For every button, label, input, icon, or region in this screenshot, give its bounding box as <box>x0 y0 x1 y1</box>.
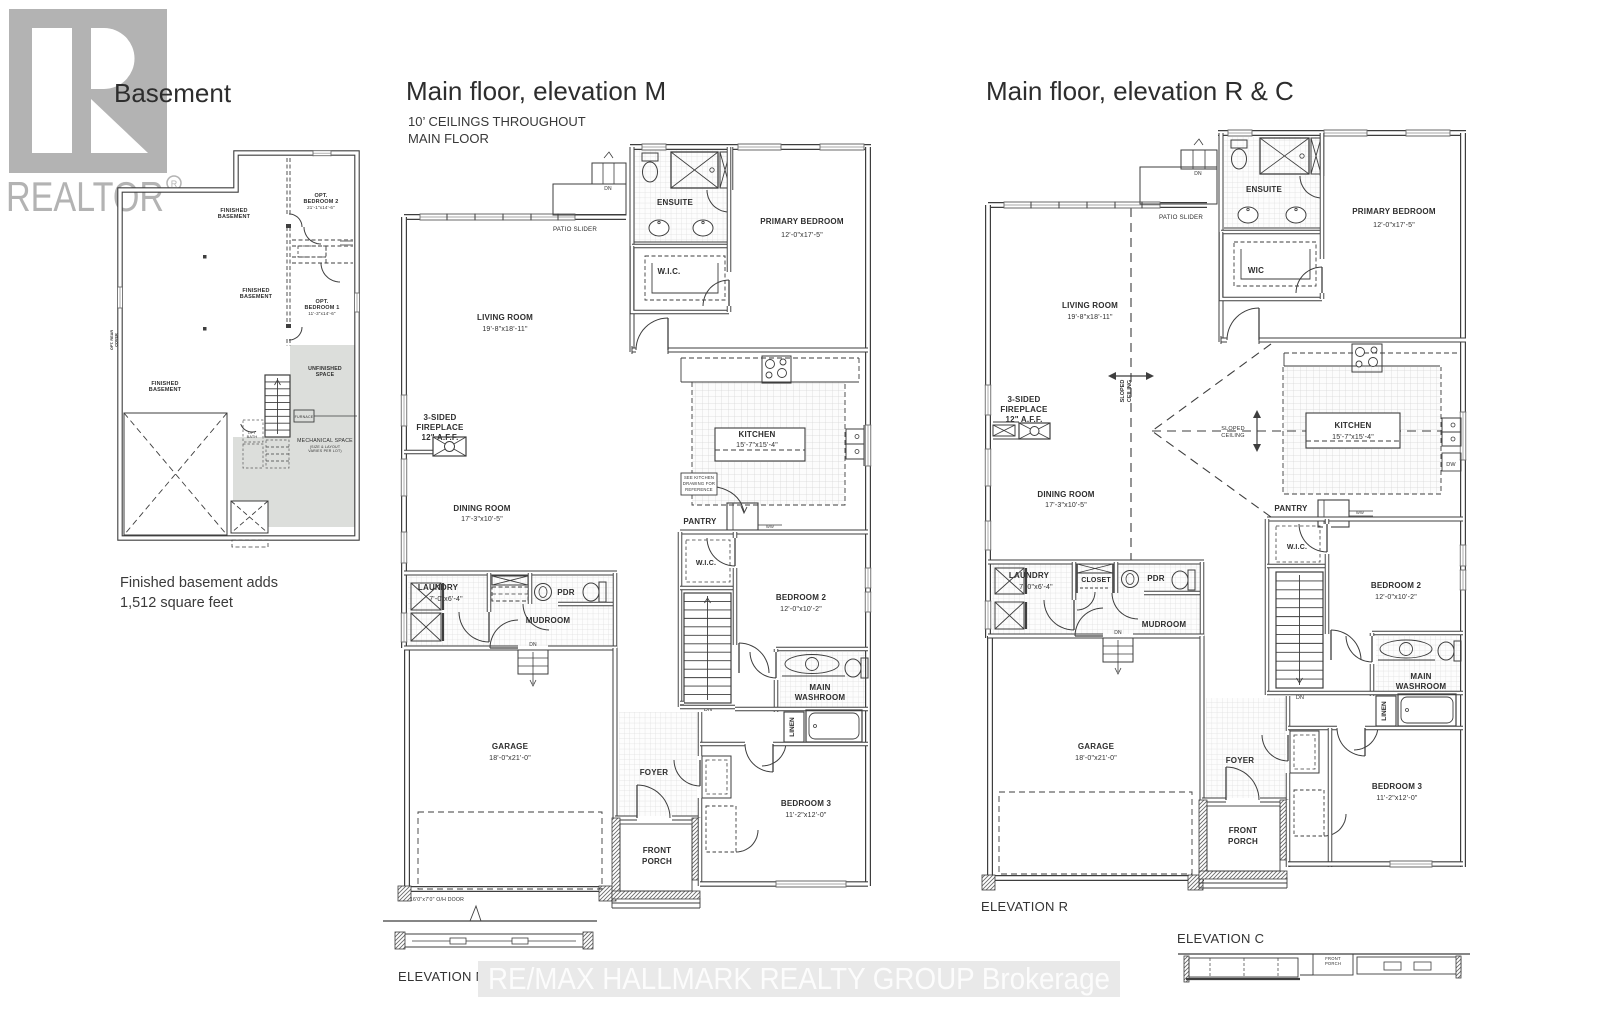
svg-text:15'-7"x15'-4": 15'-7"x15'-4" <box>1332 434 1374 441</box>
svg-text:ELEVATION M: ELEVATION M <box>398 969 487 984</box>
svg-text:SPACE: SPACE <box>316 372 335 378</box>
svg-text:16'0"x7'0" O/H DOOR: 16'0"x7'0" O/H DOOR <box>410 897 464 903</box>
svg-text:RE/MAX HALLMARK REALTY GROUP: RE/MAX HALLMARK REALTY GROUP Brokerage <box>488 961 1110 996</box>
svg-text:DN: DN <box>1194 171 1202 177</box>
svg-text:Finished basement adds: Finished basement adds <box>120 575 278 591</box>
svg-text:KITCHEN: KITCHEN <box>739 430 776 439</box>
svg-text:15'-7"x15'-4": 15'-7"x15'-4" <box>736 442 778 449</box>
svg-text:LIVING ROOM: LIVING ROOM <box>477 313 533 322</box>
svg-text:PANTRY: PANTRY <box>683 517 717 526</box>
svg-text:Main floor, elevation R & C: Main floor, elevation R & C <box>986 76 1294 106</box>
svg-text:12'-0"x10'-2": 12'-0"x10'-2" <box>780 606 822 613</box>
svg-text:FURNACE: FURNACE <box>295 415 314 419</box>
svg-text:MAIN: MAIN <box>809 683 830 692</box>
svg-text:7'-0"x6'-4": 7'-0"x6'-4" <box>429 596 463 603</box>
svg-text:SEE KITCHEN: SEE KITCHEN <box>684 475 714 480</box>
svg-text:12'-0"x10'-2": 12'-0"x10'-2" <box>1375 594 1417 601</box>
svg-text:FOYER: FOYER <box>1226 756 1255 765</box>
svg-text:10’ CEILINGS THROUGHOUT: 10’ CEILINGS THROUGHOUT <box>408 114 586 129</box>
svg-text:12'-0"x17'-5": 12'-0"x17'-5" <box>781 232 823 239</box>
svg-text:FIREPLACE: FIREPLACE <box>1000 405 1048 414</box>
svg-text:GARAGE: GARAGE <box>492 742 529 751</box>
svg-text:12'-0"x17'-5": 12'-0"x17'-5" <box>1373 222 1415 229</box>
svg-text:LIVING ROOM: LIVING ROOM <box>1062 301 1118 310</box>
svg-text:ENSUITE: ENSUITE <box>657 198 694 207</box>
svg-text:DINING ROOM: DINING ROOM <box>453 504 510 513</box>
svg-text:PDR: PDR <box>557 588 575 597</box>
svg-text:CLOSET: CLOSET <box>1081 577 1111 584</box>
svg-text:KITCHEN: KITCHEN <box>1335 421 1372 430</box>
svg-text:MUDROOM: MUDROOM <box>526 616 571 625</box>
svg-text:BEDROOM 2: BEDROOM 2 <box>776 593 827 602</box>
svg-text:DINING ROOM: DINING ROOM <box>1037 490 1094 499</box>
svg-text:BEDROOM 3: BEDROOM 3 <box>781 799 832 808</box>
svg-text:BEDROOM 3: BEDROOM 3 <box>1372 782 1423 791</box>
svg-text:Basement: Basement <box>114 78 232 108</box>
svg-text:PORCH: PORCH <box>1228 837 1258 846</box>
svg-text:3-SIDED: 3-SIDED <box>1008 395 1041 404</box>
svg-text:WASHROOM: WASHROOM <box>1396 682 1447 691</box>
svg-text:PORCH: PORCH <box>642 857 672 866</box>
svg-text:WIC: WIC <box>1248 266 1264 275</box>
svg-text:Main floor, elevation M: Main floor, elevation M <box>406 76 666 106</box>
svg-text:DN: DN <box>1296 695 1304 701</box>
svg-text:18'-0"x21'-0": 18'-0"x21'-0" <box>1075 755 1117 762</box>
svg-text:3-SIDED: 3-SIDED <box>424 413 457 422</box>
svg-text:REFERENCE: REFERENCE <box>685 487 713 492</box>
svg-text:FRONT: FRONT <box>643 846 672 855</box>
svg-text:FOYER: FOYER <box>640 768 669 777</box>
svg-text:W.I.C.: W.I.C. <box>658 267 681 276</box>
svg-text:LINEN: LINEN <box>789 717 796 737</box>
svg-text:11'-2"x12'-0": 11'-2"x12'-0" <box>785 812 827 819</box>
svg-text:PDR: PDR <box>1147 574 1165 583</box>
svg-text:PRIMARY BEDROOM: PRIMARY BEDROOM <box>1352 207 1436 216</box>
svg-text:19'-8"x18'-11": 19'-8"x18'-11" <box>1067 314 1113 321</box>
svg-text:W.I.C.: W.I.C. <box>696 560 716 567</box>
svg-text:VARIES PER LOT): VARIES PER LOT) <box>308 449 342 453</box>
svg-text:11'-3"x14'-6": 11'-3"x14'-6" <box>308 311 336 316</box>
svg-text:DRAWING FOR: DRAWING FOR <box>683 481 715 486</box>
svg-text:ELEVATION R: ELEVATION R <box>981 899 1068 914</box>
svg-text:BASEMENT: BASEMENT <box>149 387 182 393</box>
svg-text:MAIN FLOOR: MAIN FLOOR <box>408 131 489 146</box>
svg-text:PATIO SLIDER: PATIO SLIDER <box>1159 214 1203 221</box>
svg-text:PORCH: PORCH <box>1325 961 1341 966</box>
svg-text:OPT. REAR: OPT. REAR <box>110 330 114 351</box>
svg-text:SLOPED: SLOPED <box>1120 380 1126 403</box>
svg-text:FRONT: FRONT <box>1229 826 1258 835</box>
svg-text:11'-2"x12'-0": 11'-2"x12'-0" <box>1376 795 1418 802</box>
svg-text:LINEN: LINEN <box>1381 701 1388 721</box>
svg-text:BEDROOM 2: BEDROOM 2 <box>1371 581 1422 590</box>
svg-text:BATH: BATH <box>247 435 258 439</box>
svg-text:SLOPED: SLOPED <box>1221 426 1245 432</box>
svg-text:DW: DW <box>1446 462 1456 468</box>
svg-text:MAIN: MAIN <box>1410 672 1431 681</box>
svg-text:PRIMARY BEDROOM: PRIMARY BEDROOM <box>760 217 844 226</box>
svg-text:DN: DN <box>529 642 537 648</box>
svg-text:19'-8"x18'-11": 19'-8"x18'-11" <box>482 326 528 333</box>
svg-text:MUDROOM: MUDROOM <box>1142 620 1187 629</box>
svg-text:WASHROOM: WASHROOM <box>795 693 846 702</box>
svg-text:ENSUITE: ENSUITE <box>1246 185 1283 194</box>
svg-text:REALTOR: REALTOR <box>6 173 164 220</box>
svg-text:CEILING: CEILING <box>1221 433 1244 439</box>
svg-text:ELEVATION C: ELEVATION C <box>1177 931 1264 946</box>
svg-text:1,512 square feet: 1,512 square feet <box>120 595 233 611</box>
svg-text:17'-3"x10'-5": 17'-3"x10'-5" <box>1045 502 1087 509</box>
svg-text:LAUNDRY: LAUNDRY <box>418 583 459 592</box>
svg-text:GARAGE: GARAGE <box>1078 742 1115 751</box>
svg-text:17'-3"x10'-5": 17'-3"x10'-5" <box>461 516 503 523</box>
svg-text:W.I.C.: W.I.C. <box>1287 544 1307 551</box>
svg-text:CEILING: CEILING <box>1127 380 1133 402</box>
svg-text:FIREPLACE: FIREPLACE <box>416 423 464 432</box>
svg-text:BASEMENT: BASEMENT <box>218 214 251 220</box>
svg-text:BASEMENT: BASEMENT <box>240 294 273 300</box>
svg-text:18'-0"x21'-0": 18'-0"x21'-0" <box>489 755 531 762</box>
svg-text:PATIO SLIDER: PATIO SLIDER <box>553 226 597 233</box>
svg-text:PANTRY: PANTRY <box>1274 504 1308 513</box>
svg-text:DN: DN <box>1114 630 1122 636</box>
svg-text:21'-1"x14'-6": 21'-1"x14'-6" <box>307 205 335 210</box>
svg-text:COVER: COVER <box>115 333 119 347</box>
svg-text:MECHANICAL SPACE: MECHANICAL SPACE <box>297 438 353 444</box>
svg-text:DN: DN <box>604 186 612 192</box>
